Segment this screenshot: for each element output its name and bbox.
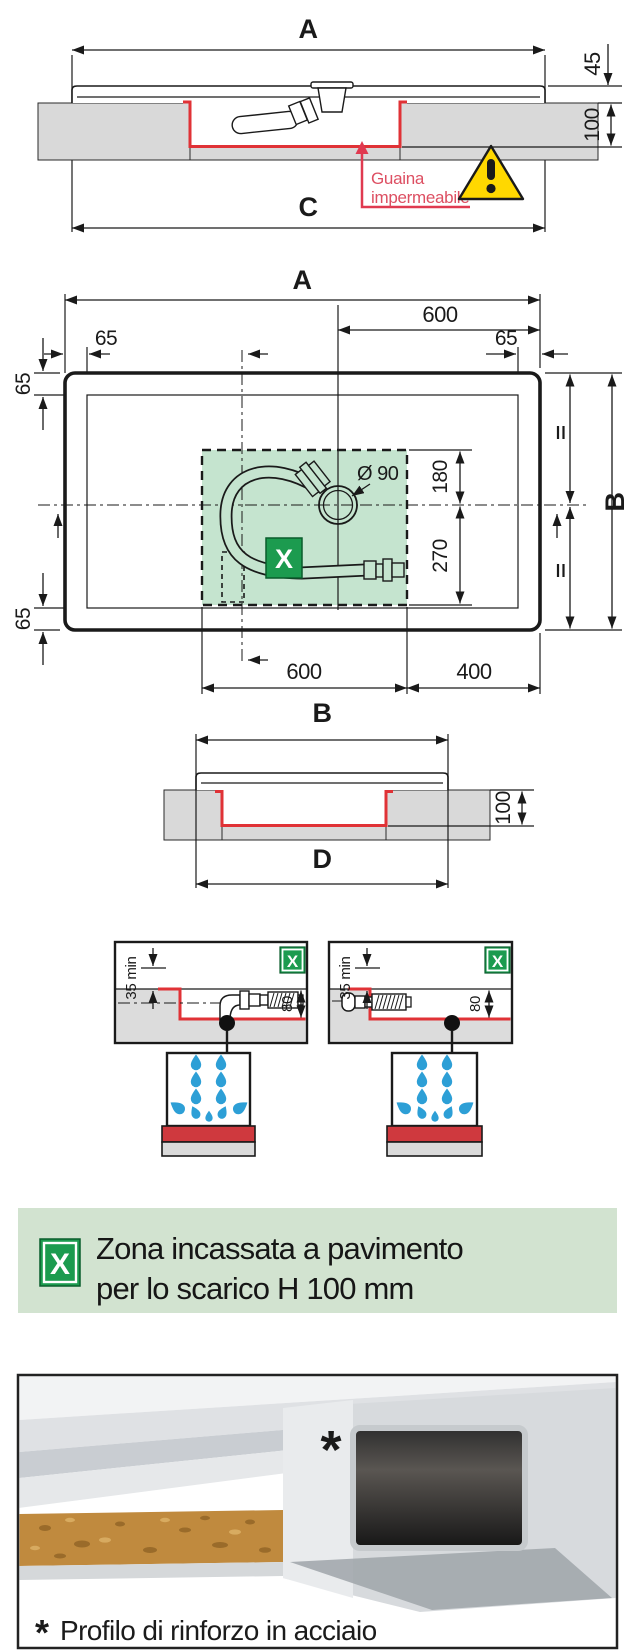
technical-drawing: A 45: [0, 0, 635, 1650]
plan-view: A 600 65 65 65: [12, 265, 630, 694]
dim-label-100-top: 100: [581, 108, 604, 142]
svg-text:80: 80: [467, 996, 484, 1012]
detail-right: 80 35 min X: [329, 942, 512, 1156]
note-line2: impermeabile: [371, 188, 469, 207]
x-badge-detail-right: X: [485, 947, 510, 973]
dim-label-a-top: A: [299, 14, 318, 44]
svg-text:65: 65: [495, 327, 517, 350]
waterproof-recess-outline-mid: [215, 792, 393, 826]
product-photo: * * Profilo di rinforzo in acciaio: [18, 1375, 617, 1650]
drain-cover: [311, 82, 353, 88]
asterisk-marker: *: [320, 1420, 341, 1480]
dim-label-45: 45: [580, 52, 605, 76]
width-cross-section: B 100 D: [164, 698, 534, 888]
dim-label-400: 400: [456, 659, 491, 684]
dim-label-600-bottom: 600: [286, 659, 321, 684]
x-badge-detail-left: X: [280, 947, 305, 973]
legend-line2: per lo scarico H 100 mm: [96, 1271, 414, 1306]
dim-label-b-plan: B: [600, 493, 630, 512]
caption-asterisk: *: [35, 1612, 49, 1650]
drain-circle: [318, 485, 358, 525]
drain-trap: [231, 98, 318, 134]
photo-caption: * Profilo di rinforzo in acciaio: [35, 1612, 377, 1650]
x-badge-plan: X: [266, 538, 302, 578]
note-line1: Guaina: [371, 169, 425, 188]
connection-point-right: [444, 1015, 460, 1031]
top-cross-section: A 45: [38, 14, 622, 232]
dim-b-plan: B: [545, 373, 630, 630]
caption-text: Profilo di rinforzo in acciaio: [60, 1615, 377, 1646]
drip-box-right: [387, 1053, 482, 1156]
svg-text:X: X: [275, 544, 293, 574]
dim-label-b-mid: B: [313, 698, 332, 728]
equal-marks: [558, 426, 564, 577]
dim-label-100-mid: 100: [492, 791, 515, 825]
x-badge-legend: X: [40, 1239, 80, 1286]
drain-diameter-label: Ø 90: [357, 463, 399, 485]
svg-text:80: 80: [279, 996, 296, 1012]
svg-text:X: X: [287, 952, 299, 971]
dim-label-600-top: 600: [422, 302, 457, 327]
dim-label-c: C: [299, 192, 318, 222]
dim-label-270: 270: [429, 539, 452, 573]
tray-profile-mid: [196, 773, 448, 790]
svg-text:35 min: 35 min: [337, 956, 354, 999]
drip-box-left: [162, 1053, 255, 1156]
legend-banner: X Zona incassata a pavimento per lo scar…: [18, 1208, 617, 1313]
floor-slab-mid: [164, 790, 490, 840]
svg-text:65: 65: [12, 373, 35, 395]
svg-text:X: X: [492, 952, 504, 971]
photo-content: *: [19, 1376, 616, 1612]
svg-text:X: X: [50, 1248, 70, 1281]
dim-label-180: 180: [429, 460, 452, 494]
connection-point-left: [219, 1015, 235, 1031]
installation-diagram-page: A 45: [0, 0, 635, 1650]
drain-body: [318, 88, 346, 112]
svg-text:35 min: 35 min: [123, 956, 140, 999]
chipboard-layer: [19, 1510, 283, 1580]
svg-text:65: 65: [12, 608, 35, 630]
legend-line1: Zona incassata a pavimento: [96, 1231, 463, 1266]
dim-label-d: D: [313, 844, 332, 874]
dim-label-a-plan: A: [293, 265, 312, 295]
steel-profile-opening: [353, 1428, 525, 1548]
detail-left: 80 35 min X: [115, 942, 307, 1156]
floor-slab: [38, 103, 598, 160]
svg-text:65: 65: [95, 327, 117, 350]
dim-45: 45: [548, 44, 622, 86]
